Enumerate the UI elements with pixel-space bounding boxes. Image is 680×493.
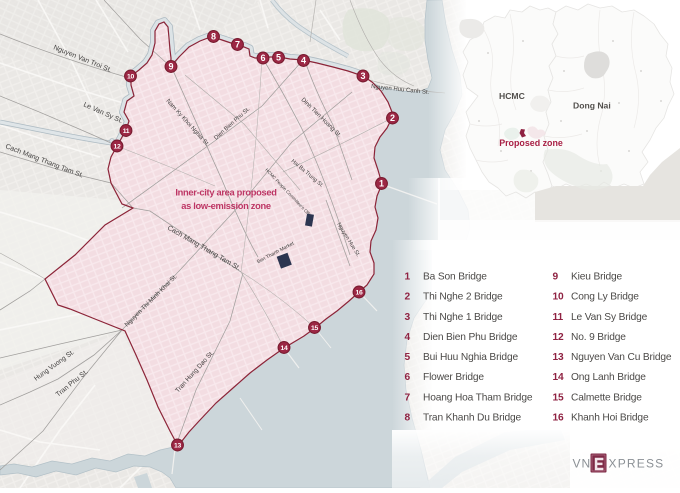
svg-text:Khanh Hoi Bridge: Khanh Hoi Bridge bbox=[571, 413, 649, 424]
svg-text:10: 10 bbox=[127, 74, 134, 81]
svg-text:5: 5 bbox=[405, 352, 411, 363]
svg-text:15: 15 bbox=[311, 325, 318, 332]
svg-text:10: 10 bbox=[553, 292, 565, 303]
svg-text:Inner-city area proposed: Inner-city area proposed bbox=[175, 188, 277, 198]
svg-text:12: 12 bbox=[114, 144, 121, 151]
svg-text:Dien Bien Phu Bridge: Dien Bien Phu Bridge bbox=[423, 332, 518, 343]
svg-text:Flower Bridge: Flower Bridge bbox=[423, 372, 484, 383]
svg-text:6: 6 bbox=[405, 372, 411, 383]
svg-text:2: 2 bbox=[405, 292, 411, 303]
svg-text:1: 1 bbox=[379, 179, 384, 189]
svg-text:16: 16 bbox=[553, 413, 565, 424]
svg-text:HCMC: HCMC bbox=[499, 91, 525, 101]
svg-text:XPRESS: XPRESS bbox=[609, 457, 665, 471]
svg-text:9: 9 bbox=[553, 272, 559, 283]
svg-text:13: 13 bbox=[553, 352, 565, 363]
svg-text:Ba Son Bridge: Ba Son Bridge bbox=[423, 272, 487, 283]
svg-text:6: 6 bbox=[260, 53, 265, 63]
svg-text:as low-emission zone: as low-emission zone bbox=[181, 201, 271, 211]
svg-text:Nguyen Van Cu Bridge: Nguyen Van Cu Bridge bbox=[571, 352, 672, 363]
svg-text:Dong Nai: Dong Nai bbox=[573, 101, 611, 111]
svg-text:Bui Huu Nghia Bridge: Bui Huu Nghia Bridge bbox=[423, 352, 518, 363]
svg-text:Kieu Bridge: Kieu Bridge bbox=[571, 272, 623, 283]
svg-text:Ong Lanh Bridge: Ong Lanh Bridge bbox=[571, 372, 646, 383]
svg-text:2: 2 bbox=[390, 113, 395, 123]
svg-text:5: 5 bbox=[276, 53, 281, 63]
svg-text:4: 4 bbox=[301, 56, 306, 66]
svg-text:VN: VN bbox=[573, 457, 592, 471]
svg-text:8: 8 bbox=[211, 32, 216, 42]
svg-text:Hoang Hoa Tham Bridge: Hoang Hoa Tham Bridge bbox=[423, 392, 533, 403]
svg-text:Thi Nghe 2 Bridge: Thi Nghe 2 Bridge bbox=[423, 292, 503, 303]
svg-text:9: 9 bbox=[168, 62, 173, 72]
svg-text:13: 13 bbox=[174, 443, 181, 450]
svg-text:3: 3 bbox=[360, 71, 365, 81]
svg-text:1: 1 bbox=[405, 272, 411, 283]
svg-text:No. 9 Bridge: No. 9 Bridge bbox=[571, 332, 626, 343]
svg-text:4: 4 bbox=[405, 332, 411, 343]
svg-text:7: 7 bbox=[235, 40, 240, 50]
svg-text:14: 14 bbox=[281, 345, 288, 352]
svg-text:11: 11 bbox=[123, 128, 130, 135]
svg-text:Proposed zone: Proposed zone bbox=[499, 138, 563, 148]
svg-text:Le Van Sy Bridge: Le Van Sy Bridge bbox=[571, 312, 648, 323]
svg-text:12: 12 bbox=[553, 332, 565, 343]
svg-text:Calmette Bridge: Calmette Bridge bbox=[571, 392, 642, 403]
svg-text:14: 14 bbox=[553, 372, 565, 383]
svg-text:Cong Ly Bridge: Cong Ly Bridge bbox=[571, 292, 639, 303]
svg-text:11: 11 bbox=[553, 312, 564, 323]
svg-text:16: 16 bbox=[356, 290, 363, 297]
svg-text:3: 3 bbox=[405, 312, 411, 323]
svg-text:Thi Nghe 1 Bridge: Thi Nghe 1 Bridge bbox=[423, 312, 503, 323]
svg-text:8: 8 bbox=[405, 413, 411, 424]
svg-text:7: 7 bbox=[405, 392, 411, 403]
svg-text:Tran Khanh Du Bridge: Tran Khanh Du Bridge bbox=[423, 413, 521, 424]
svg-text:15: 15 bbox=[553, 392, 565, 403]
